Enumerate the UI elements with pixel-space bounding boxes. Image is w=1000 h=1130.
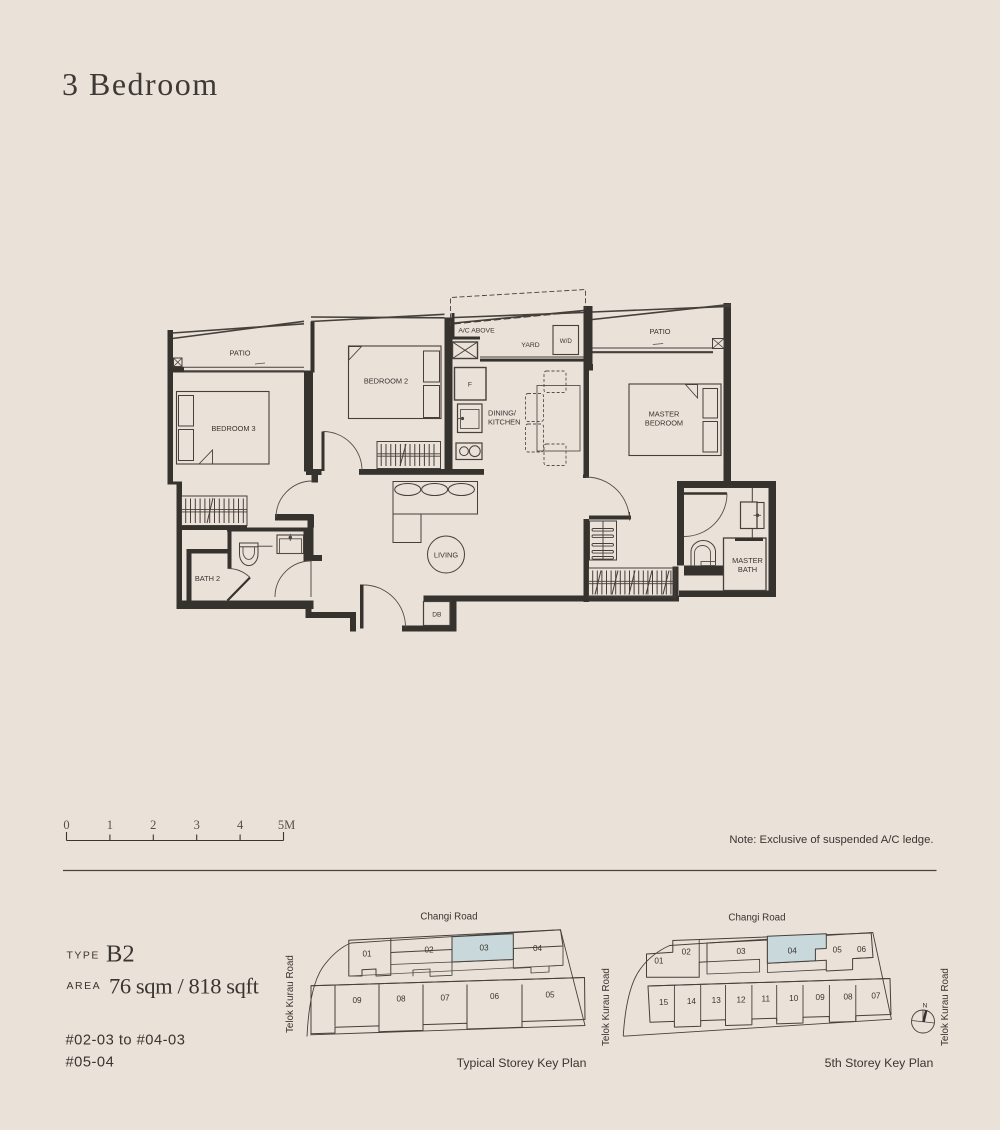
svg-text:15: 15 [659, 998, 669, 1007]
svg-text:06: 06 [857, 945, 867, 954]
svg-text:F: F [468, 382, 472, 389]
svg-text:07: 07 [440, 994, 450, 1003]
svg-text:05: 05 [833, 946, 843, 955]
svg-text:06: 06 [490, 992, 500, 1001]
svg-text:BEDROOM 3: BEDROOM 3 [211, 424, 255, 433]
svg-text:1: 1 [107, 818, 113, 832]
svg-text:01: 01 [362, 950, 372, 959]
svg-text:05: 05 [545, 991, 555, 1000]
svg-text:5th Storey Key Plan: 5th Storey Key Plan [825, 1056, 934, 1070]
svg-text:Changi Road: Changi Road [728, 913, 785, 924]
svg-text:W/D: W/D [560, 338, 573, 345]
svg-text:09: 09 [352, 996, 362, 1005]
svg-text:08: 08 [396, 995, 406, 1004]
svg-text:DB: DB [432, 612, 442, 619]
svg-text:Telok Kurau Road: Telok Kurau Road [940, 968, 951, 1046]
svg-text:A/C ABOVE: A/C ABOVE [458, 328, 495, 335]
svg-text:PATIO: PATIO [649, 327, 670, 336]
svg-text:B2: B2 [106, 941, 135, 968]
svg-text:04: 04 [533, 944, 543, 953]
svg-text:04: 04 [788, 947, 798, 956]
svg-text:Changi Road: Changi Road [420, 912, 477, 923]
svg-text:#05-04: #05-04 [66, 1055, 115, 1071]
svg-text:TYPE: TYPE [67, 950, 100, 962]
svg-text:5M: 5M [278, 818, 295, 832]
svg-text:Typical Storey Key Plan: Typical Storey Key Plan [457, 1056, 587, 1070]
svg-text:3: 3 [194, 818, 200, 832]
svg-text:Note: Exclusive of suspended A: Note: Exclusive of suspended A/C ledge. [729, 834, 933, 846]
svg-text:AREA: AREA [67, 980, 102, 992]
svg-text:76 sqm / 818 sqft: 76 sqm / 818 sqft [109, 974, 260, 999]
svg-text:12: 12 [736, 996, 746, 1005]
svg-text:10: 10 [789, 994, 799, 1003]
svg-text:0: 0 [63, 818, 69, 832]
svg-text:#02-03 to #04-03: #02-03 to #04-03 [66, 1033, 186, 1049]
svg-text:4: 4 [237, 818, 244, 832]
svg-text:BATH 2: BATH 2 [195, 574, 220, 583]
svg-text:MASTER: MASTER [649, 410, 680, 419]
svg-text:Telok Kurau Road: Telok Kurau Road [601, 968, 612, 1046]
svg-text:01: 01 [654, 957, 664, 966]
svg-text:02: 02 [424, 946, 434, 955]
svg-text:MASTER: MASTER [732, 556, 763, 565]
svg-text:13: 13 [712, 996, 722, 1005]
svg-text:BATH: BATH [738, 565, 757, 574]
svg-text:02: 02 [682, 948, 692, 957]
svg-text:BEDROOM 2: BEDROOM 2 [364, 377, 408, 386]
svg-text:Telok Kurau Road: Telok Kurau Road [285, 955, 296, 1033]
svg-text:03: 03 [736, 947, 746, 956]
svg-text:11: 11 [762, 995, 771, 1004]
svg-text:09: 09 [816, 993, 826, 1002]
svg-text:N: N [923, 1003, 928, 1010]
svg-text:2: 2 [150, 818, 156, 832]
svg-text:YARD: YARD [521, 342, 539, 349]
svg-text:LIVING: LIVING [434, 551, 458, 560]
svg-text:PATIO: PATIO [229, 349, 250, 358]
svg-text:08: 08 [843, 992, 853, 1001]
svg-text:KITCHEN: KITCHEN [488, 418, 520, 427]
svg-text:03: 03 [479, 944, 489, 953]
svg-text:DINING/: DINING/ [488, 409, 517, 418]
svg-text:07: 07 [871, 992, 881, 1001]
svg-text:BEDROOM: BEDROOM [645, 419, 683, 428]
svg-text:14: 14 [687, 997, 697, 1006]
